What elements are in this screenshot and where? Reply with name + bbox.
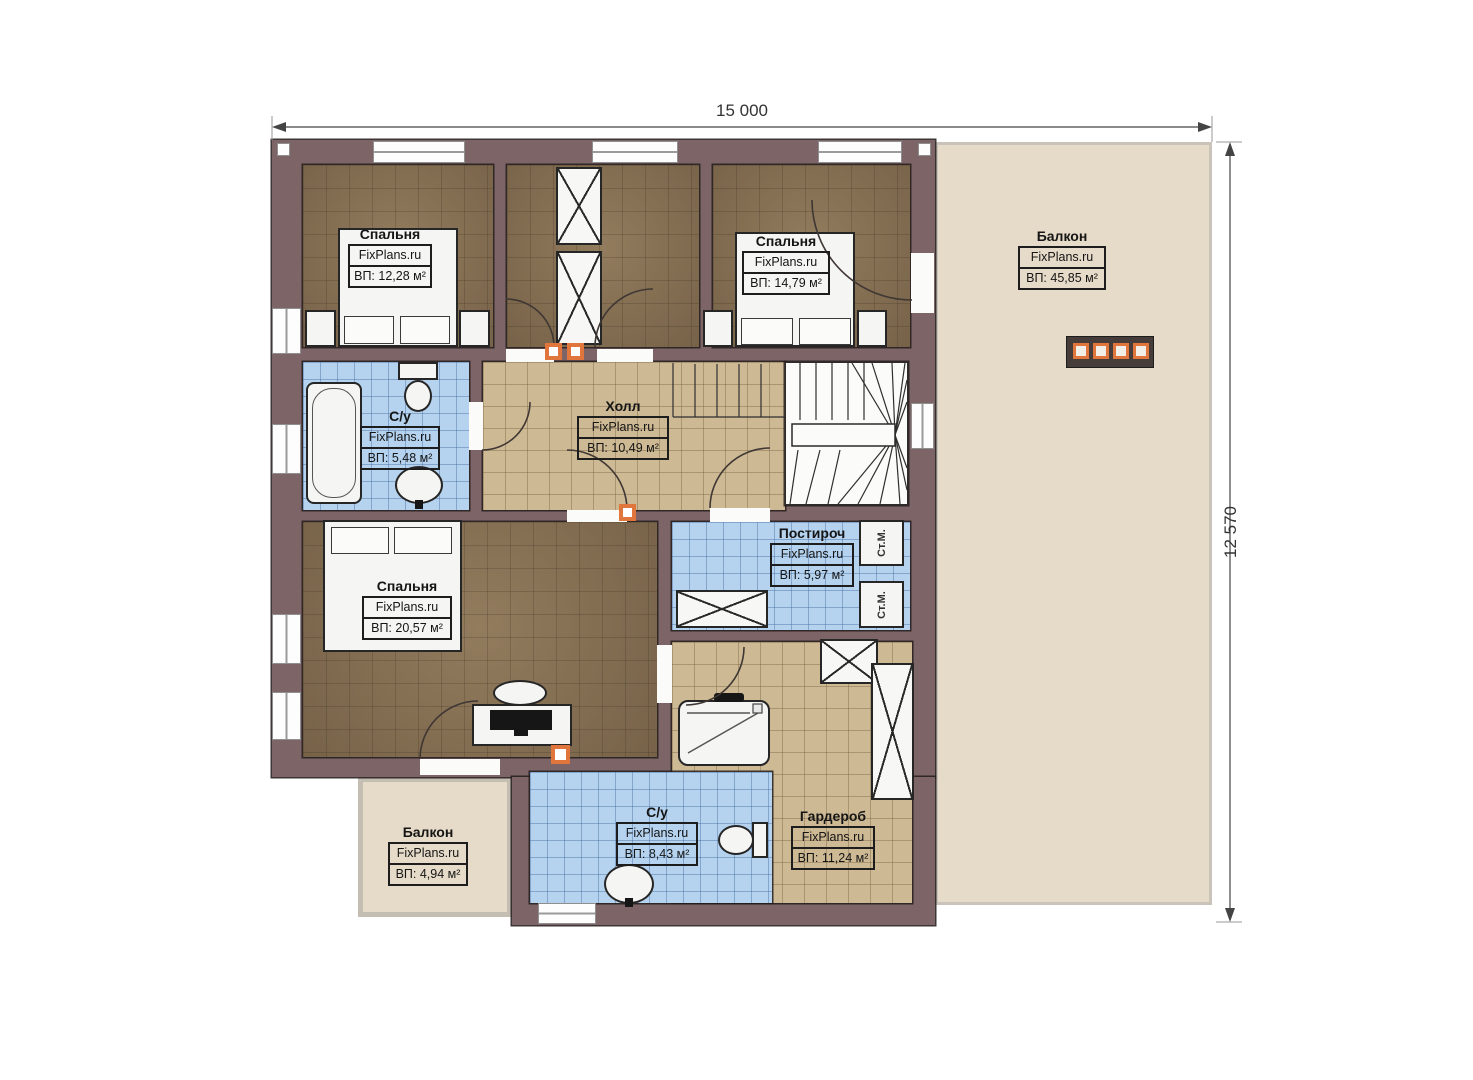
door-gap xyxy=(597,349,653,362)
brand-box: FixPlans.ru xyxy=(791,826,875,849)
floor-plan: Ст.М. Ст.М. xyxy=(0,0,1473,1080)
area-box: ВП: 20,57 м² xyxy=(362,617,452,640)
brand-box: FixPlans.ru xyxy=(348,244,432,267)
door-gap xyxy=(657,645,672,703)
pillow-symbol xyxy=(344,316,394,344)
pillow-symbol xyxy=(394,527,452,554)
window xyxy=(272,692,301,740)
floor-corridor-top xyxy=(507,165,699,347)
room-name: Спальня xyxy=(742,233,830,249)
area-box: ВП: 8,43 м² xyxy=(616,843,698,866)
toilet-bowl-symbol xyxy=(718,825,754,855)
dimension-width-label: 15 000 xyxy=(692,101,792,121)
window xyxy=(272,424,301,474)
washing-machine-symbol: Ст.М. xyxy=(859,520,904,566)
room-name: Балкон xyxy=(1018,228,1106,244)
toilet-tank-symbol xyxy=(752,822,768,858)
room-label-laundry: Постироч FixPlans.ru ВП: 5,97 м² xyxy=(770,525,854,587)
closet-symbol xyxy=(556,251,602,345)
area-box: ВП: 5,48 м² xyxy=(360,447,440,470)
room-label-bedroom-top-left: Спальня FixPlans.ru ВП: 12,28 м² xyxy=(348,226,432,288)
area-box: ВП: 11,24 м² xyxy=(791,847,875,870)
area-box: ВП: 12,28 м² xyxy=(348,265,432,288)
toilet-tank-symbol xyxy=(398,362,438,380)
washing-machine-label: Ст.М. xyxy=(875,529,887,557)
brand-box: FixPlans.ru xyxy=(742,251,830,274)
window xyxy=(538,903,596,924)
window xyxy=(592,141,678,163)
vent-marker xyxy=(619,504,636,521)
door-gap xyxy=(710,508,770,522)
window xyxy=(818,141,902,163)
brand-box: FixPlans.ru xyxy=(577,416,669,439)
dimension-height-label: 12 570 xyxy=(1221,497,1241,567)
room-name: Гардероб xyxy=(791,808,875,824)
room-label-balcony-right: Балкон FixPlans.ru ВП: 45,85 м² xyxy=(1018,228,1106,290)
radiator-cell xyxy=(1133,343,1149,359)
wall-corner-mark xyxy=(277,143,290,156)
room-name: Балкон xyxy=(388,824,468,840)
bathtub-symbol xyxy=(306,382,362,504)
brand-box: FixPlans.ru xyxy=(362,596,452,619)
washing-machine-symbol: Ст.М. xyxy=(859,581,904,628)
floor-staircase xyxy=(785,362,908,505)
window xyxy=(272,614,301,664)
brand-box: FixPlans.ru xyxy=(616,822,698,845)
closet-symbol xyxy=(676,590,768,628)
balcony-radiator-symbol xyxy=(1066,336,1154,368)
area-box: ВП: 4,94 м² xyxy=(388,863,468,886)
room-name: Спальня xyxy=(362,578,452,594)
area-box: ВП: 14,79 м² xyxy=(742,272,830,295)
washing-machine-label: Ст.М. xyxy=(875,591,887,619)
tap-symbol xyxy=(625,898,633,907)
door-gap-balcony-small xyxy=(420,759,500,775)
brand-box: FixPlans.ru xyxy=(388,842,468,865)
window xyxy=(373,141,465,163)
room-label-bedroom-bottom: Спальня FixPlans.ru ВП: 20,57 м² xyxy=(362,578,452,640)
closet-symbol xyxy=(871,663,914,800)
monitor-stand-symbol xyxy=(514,730,528,736)
area-box: ВП: 5,97 м² xyxy=(770,564,854,587)
pillow-symbol xyxy=(400,316,450,344)
nightstand-symbol xyxy=(459,310,490,347)
sink-symbol xyxy=(395,466,443,504)
closet-symbol xyxy=(556,167,602,245)
nightstand-symbol xyxy=(857,310,887,347)
door-gap xyxy=(469,402,483,450)
room-label-wardrobe: Гардероб FixPlans.ru ВП: 11,24 м² xyxy=(791,808,875,870)
radiator-cell xyxy=(1113,343,1129,359)
chair-symbol xyxy=(493,680,547,706)
shower-head-symbol xyxy=(714,693,744,702)
wall-corner-mark xyxy=(918,143,931,156)
room-label-balcony-small: Балкон FixPlans.ru ВП: 4,94 м² xyxy=(388,824,468,886)
vent-marker xyxy=(545,343,562,360)
pillow-symbol xyxy=(799,318,851,345)
monitor-symbol xyxy=(490,710,552,730)
door-gap-balcony-right xyxy=(911,253,934,313)
room-name: Спальня xyxy=(348,226,432,242)
room-name: Постироч xyxy=(770,525,854,541)
room-label-bedroom-top-right: Спальня FixPlans.ru ВП: 14,79 м² xyxy=(742,233,830,295)
vent-marker xyxy=(551,745,570,764)
window xyxy=(911,403,934,449)
room-name: Холл xyxy=(577,398,669,414)
closet-symbol xyxy=(820,639,878,684)
brand-box: FixPlans.ru xyxy=(360,426,440,449)
radiator-cell xyxy=(1073,343,1089,359)
shower-tray-symbol xyxy=(678,700,770,766)
brand-box: FixPlans.ru xyxy=(1018,246,1106,269)
radiator-cell xyxy=(1093,343,1109,359)
area-box: ВП: 45,85 м² xyxy=(1018,267,1106,290)
room-name: С/у xyxy=(360,408,440,424)
pillow-symbol xyxy=(331,527,389,554)
brand-box: FixPlans.ru xyxy=(770,543,854,566)
room-name: С/у xyxy=(616,804,698,820)
tap-symbol xyxy=(415,500,423,509)
room-label-bathroom-upper: С/у FixPlans.ru ВП: 5,48 м² xyxy=(360,408,440,470)
door-gap xyxy=(567,510,627,522)
nightstand-symbol xyxy=(703,310,733,347)
pillow-symbol xyxy=(741,318,793,345)
vent-marker xyxy=(567,343,584,360)
nightstand-symbol xyxy=(305,310,336,347)
room-label-hall: Холл FixPlans.ru ВП: 10,49 м² xyxy=(577,398,669,460)
area-box: ВП: 10,49 м² xyxy=(577,437,669,460)
window xyxy=(272,308,301,354)
room-label-bathroom-lower: С/у FixPlans.ru ВП: 8,43 м² xyxy=(616,804,698,866)
